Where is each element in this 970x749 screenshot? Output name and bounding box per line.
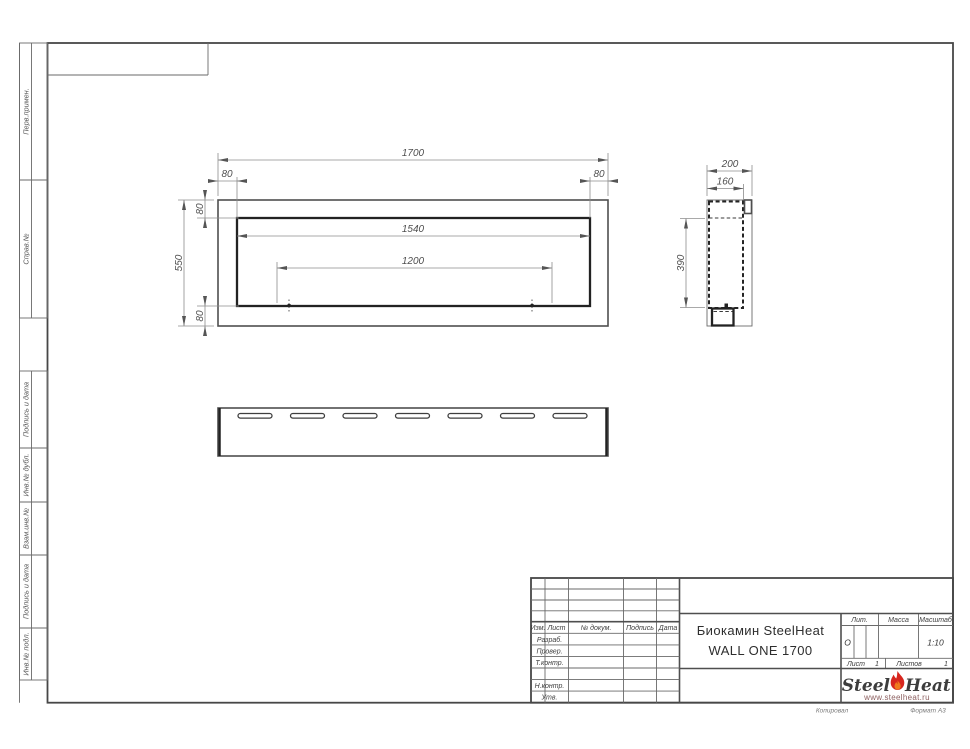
svg-text:390: 390: [676, 254, 687, 271]
tb-row-utv: Утв.: [541, 695, 558, 702]
svg-text:80: 80: [221, 169, 233, 180]
vent-slot: [291, 414, 325, 419]
dim-80-top: 80: [195, 190, 239, 228]
side-top-bracket: [745, 200, 752, 214]
svg-text:550: 550: [174, 254, 185, 271]
footer-format-note: Формат А3: [910, 708, 946, 715]
front-view: 1700 80 80 80: [174, 148, 618, 336]
logo-site: www.steelheat.ru: [863, 693, 930, 702]
vent-slot: [396, 414, 430, 419]
dim-1700: 1700: [218, 148, 608, 196]
vent-slot: [238, 414, 272, 419]
tb-col-podpis: Подпись: [626, 624, 654, 632]
sheet-frame: [20, 43, 954, 703]
svg-text:1200: 1200: [402, 256, 425, 267]
dim-160: 160: [707, 177, 744, 201]
vent-slot: [553, 414, 587, 419]
tb-masshtab-value: 1:10: [927, 638, 944, 648]
vent-slot: [501, 414, 535, 419]
tb-col-data: Дата: [658, 625, 678, 632]
margin-label-podpis-data-2: Подпись и дата: [22, 564, 31, 619]
svg-text:160: 160: [717, 177, 734, 188]
tb-row-razrab: Разраб.: [537, 636, 562, 644]
dim-80-left: 80: [208, 169, 247, 218]
svg-text:80: 80: [195, 203, 206, 215]
margin-label-podpis-data-1: Подпись и дата: [22, 382, 31, 437]
svg-text:200: 200: [721, 159, 739, 170]
dim-80-bottom: 80: [195, 296, 239, 336]
tb-col-izm: Изм.: [531, 625, 546, 632]
dim-1200: 1200: [277, 256, 552, 303]
margin-column: Перв.примен. Справ.№ Подпись и дата Инв.…: [20, 43, 48, 680]
side-hidden-body: [709, 202, 743, 309]
footer-copy-note: Копировал: [816, 708, 849, 715]
side-view: 200 160 390: [676, 159, 752, 326]
vent-slot: [343, 414, 377, 419]
margin-label-inv-podl: Инв.№ подл.: [22, 632, 31, 675]
svg-text:1540: 1540: [402, 224, 425, 235]
tb-row-nkontr: Н.контр.: [535, 683, 565, 690]
svg-text:80: 80: [195, 310, 206, 322]
drawing-sheet-page: { "sheet": { "margin_labels_top": ["Перв…: [0, 0, 970, 749]
tb-col-list: Лист: [546, 625, 565, 632]
tb-masshtab-label: Масштаб: [919, 616, 953, 624]
vent-slot: [448, 414, 482, 419]
flame-icon: [891, 671, 905, 690]
tb-listov-value: 1: [944, 661, 948, 668]
tb-list-value: 1: [875, 661, 879, 668]
tb-lit-value: О: [844, 638, 851, 648]
tb-col-doc: № докум.: [581, 624, 612, 632]
tb-list-label: Лист: [846, 661, 865, 668]
svg-text:1700: 1700: [402, 148, 425, 159]
margin-label-perv-primen: Перв.примен.: [22, 88, 31, 134]
doc-title-line2: WALL ONE 1700: [709, 643, 813, 658]
logo: Steel Heat www.steelheat.ru: [842, 671, 951, 702]
footer-notes: Копировал Формат А3: [816, 708, 946, 715]
tb-listov-label: Листов: [895, 661, 922, 668]
margin-label-sprav-no: Справ.№: [22, 233, 31, 264]
side-valve-mark: [725, 304, 729, 308]
engineering-drawing: Перв.примен. Справ.№ Подпись и дата Инв.…: [0, 0, 970, 749]
tb-row-tkontr: Т.контр.: [535, 660, 563, 667]
margin-label-inv-dubl: Инв.№ дубл.: [22, 454, 31, 497]
dim-1540: 1540: [237, 224, 590, 236]
bottom-view: [218, 408, 608, 456]
doc-title-line1: Биокамин SteelHeat: [697, 623, 825, 638]
tb-lit-label: Лит.: [850, 617, 867, 624]
dim-390: 390: [676, 219, 705, 308]
svg-text:80: 80: [593, 169, 605, 180]
dim-550: 550: [174, 200, 214, 326]
dim-80-right: 80: [580, 169, 618, 218]
tb-massa-label: Масса: [888, 617, 909, 624]
margin-label-vzam-inv: Взам.инв.№: [22, 508, 31, 549]
tb-row-prover: Провер.: [536, 648, 562, 655]
